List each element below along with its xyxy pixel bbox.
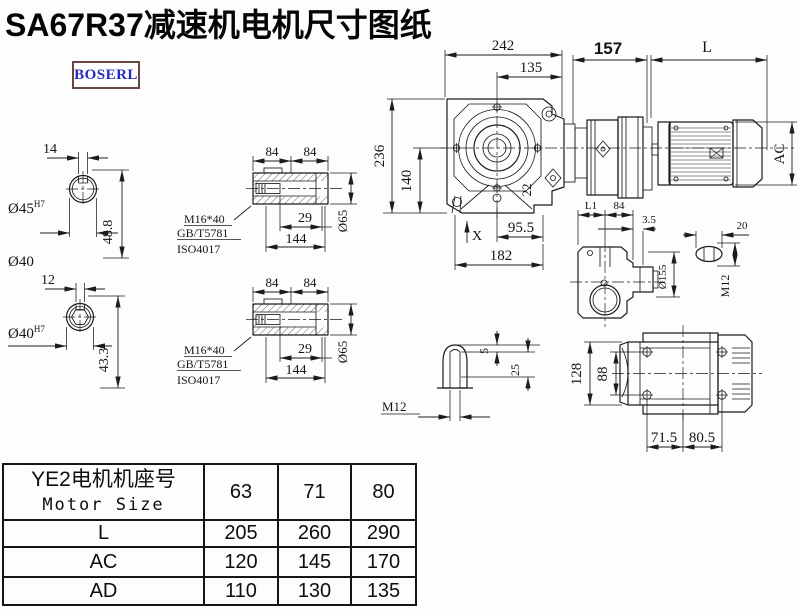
dim-L1: L1 [585,200,597,212]
dim-depth-29: 29 [298,211,312,226]
shaft-40-outline [63,299,98,335]
plug-detail-view: 5 25 M12 [381,331,540,421]
label-screw-m16: M16*40 [184,343,225,357]
AC-80: 170 [351,547,416,577]
table-header-cell: YE2电机机座号 Motor Size [3,464,204,520]
dim-seg1-84: 84 [266,144,280,159]
lug-outline [696,247,722,262]
table-row-AD: AD 110 130 135 [3,577,416,605]
label-m12-plug: M12 [382,399,407,414]
dim-236: 236 [372,144,388,167]
col-size-71: 71 [278,464,351,520]
label-X: X [472,229,482,244]
dim-dia-65: Ø65 [335,341,350,363]
bore-40-tolerance: H7 [34,324,45,334]
label-bore-40: Ø40H7 [8,324,45,342]
bore-45-tolerance: H7 [34,199,45,209]
dim-length-144: 144 [286,232,307,247]
dim-135: 135 [520,60,543,76]
label-m12-side: M12 [718,275,732,298]
label-std-iso: ISO4017 [177,373,220,387]
dim-seg2-84: 84 [304,144,318,159]
header-en: Motor Size [4,493,203,517]
label-std-gb: GB/T5781 [177,226,228,240]
breather-plug [545,169,561,187]
dim-5: 5 [477,348,491,354]
dim-3-5: 3.5 [642,214,656,226]
dim-motor-L: L [702,39,712,56]
L-80: 290 [351,520,416,547]
row-label-AD: AD [3,577,204,605]
lug-detail-view: 20 M12 [683,220,749,297]
AD-63: 110 [204,577,278,605]
main-view-dimensions [383,50,797,270]
label-screw-m16: M16*40 [184,212,225,226]
AD-80: 135 [351,577,416,605]
dim-key-width-14: 14 [43,142,57,157]
col-size-80: 80 [351,464,416,520]
motor-size-table: YE2电机机座号 Motor Size 63 71 80 L 205 260 2… [2,463,417,606]
dim-242: 242 [492,38,515,54]
dim-71-5: 71.5 [651,430,677,446]
side-view-outline [570,240,665,327]
shaft-40-end-view: 12 Ø40H7 43.3 [8,273,125,388]
dim-length-144: 144 [286,363,307,378]
dim-seg1-84: 84 [266,275,280,290]
dim-dia-65: Ø65 [335,210,350,232]
header-cn: YE2电机机座号 [4,467,203,493]
shaft-45-end-view: 14 Ø45H7 48.8 Ø40 [8,142,129,270]
hollow-shaft-lower-outline [234,299,344,351]
motor-fins [671,128,731,180]
label-std-gb: GB/T5781 [177,357,228,371]
dim-dia-155: Ø155 [657,264,669,289]
motor-outline [658,120,762,187]
table-row-AC: AC 120 145 170 [3,547,416,577]
dim-84-side: 84 [614,200,626,212]
dim-depth-29: 29 [298,342,312,357]
dim-25: 25 [508,364,522,376]
dim-seg2-84: 84 [304,275,318,290]
dim-128: 128 [569,363,585,386]
shaft-45-outline [66,171,101,207]
hollow-shaft-section-upper: 84 84 M16*40 GB/T5781 ISO4017 29 144 Ø65 [177,144,357,256]
dim-22: 22 [519,184,534,197]
AC-71: 145 [278,547,351,577]
dim-140: 140 [399,170,415,193]
dim-20: 20 [737,220,749,232]
L-71: 260 [278,520,351,547]
dim-motor-AC: AC [772,144,788,165]
dim-height-48-8: 48.8 [101,220,116,245]
gearbox-side-view: L1 84 3.5 Ø155 [570,200,680,327]
dim-95-5: 95.5 [508,220,534,236]
L-63: 205 [204,520,278,547]
dim-key-width-12: 12 [41,273,55,288]
adapter-stages-outline [564,117,658,198]
bore-40-value: Ø40 [8,326,34,342]
dim-157: 157 [594,39,622,58]
bore-45-value: Ø45 [8,201,34,217]
label-std-iso: ISO4017 [177,242,220,256]
oil-plug [542,107,556,121]
AC-63: 120 [204,547,278,577]
hollow-shaft-upper-outline [234,168,344,220]
bottom-view-outline [612,325,762,420]
table-row-L: L 205 260 290 [3,520,416,547]
drawing-page: SA67R37减速机电机尺寸图纸 BOSERL [0,0,800,609]
label-outer-40: Ø40 [8,254,34,270]
dim-88: 88 [595,367,611,382]
col-size-63: 63 [204,464,278,520]
hollow-shaft-section-lower: 84 84 M16*40 GB/T5781 ISO4017 29 144 Ø65 [177,275,357,387]
dim-182: 182 [490,248,513,264]
dim-height-43-3: 43.3 [97,348,112,373]
row-label-L: L [3,520,204,547]
bottom-view: 128 88 71.5 80.5 [569,325,762,452]
label-bore-45: Ø45H7 [8,199,45,217]
AD-71: 130 [278,577,351,605]
row-label-AC: AC [3,547,204,577]
dim-80-5: 80.5 [689,430,715,446]
table-header-row: YE2电机机座号 Motor Size 63 71 80 [3,464,416,520]
